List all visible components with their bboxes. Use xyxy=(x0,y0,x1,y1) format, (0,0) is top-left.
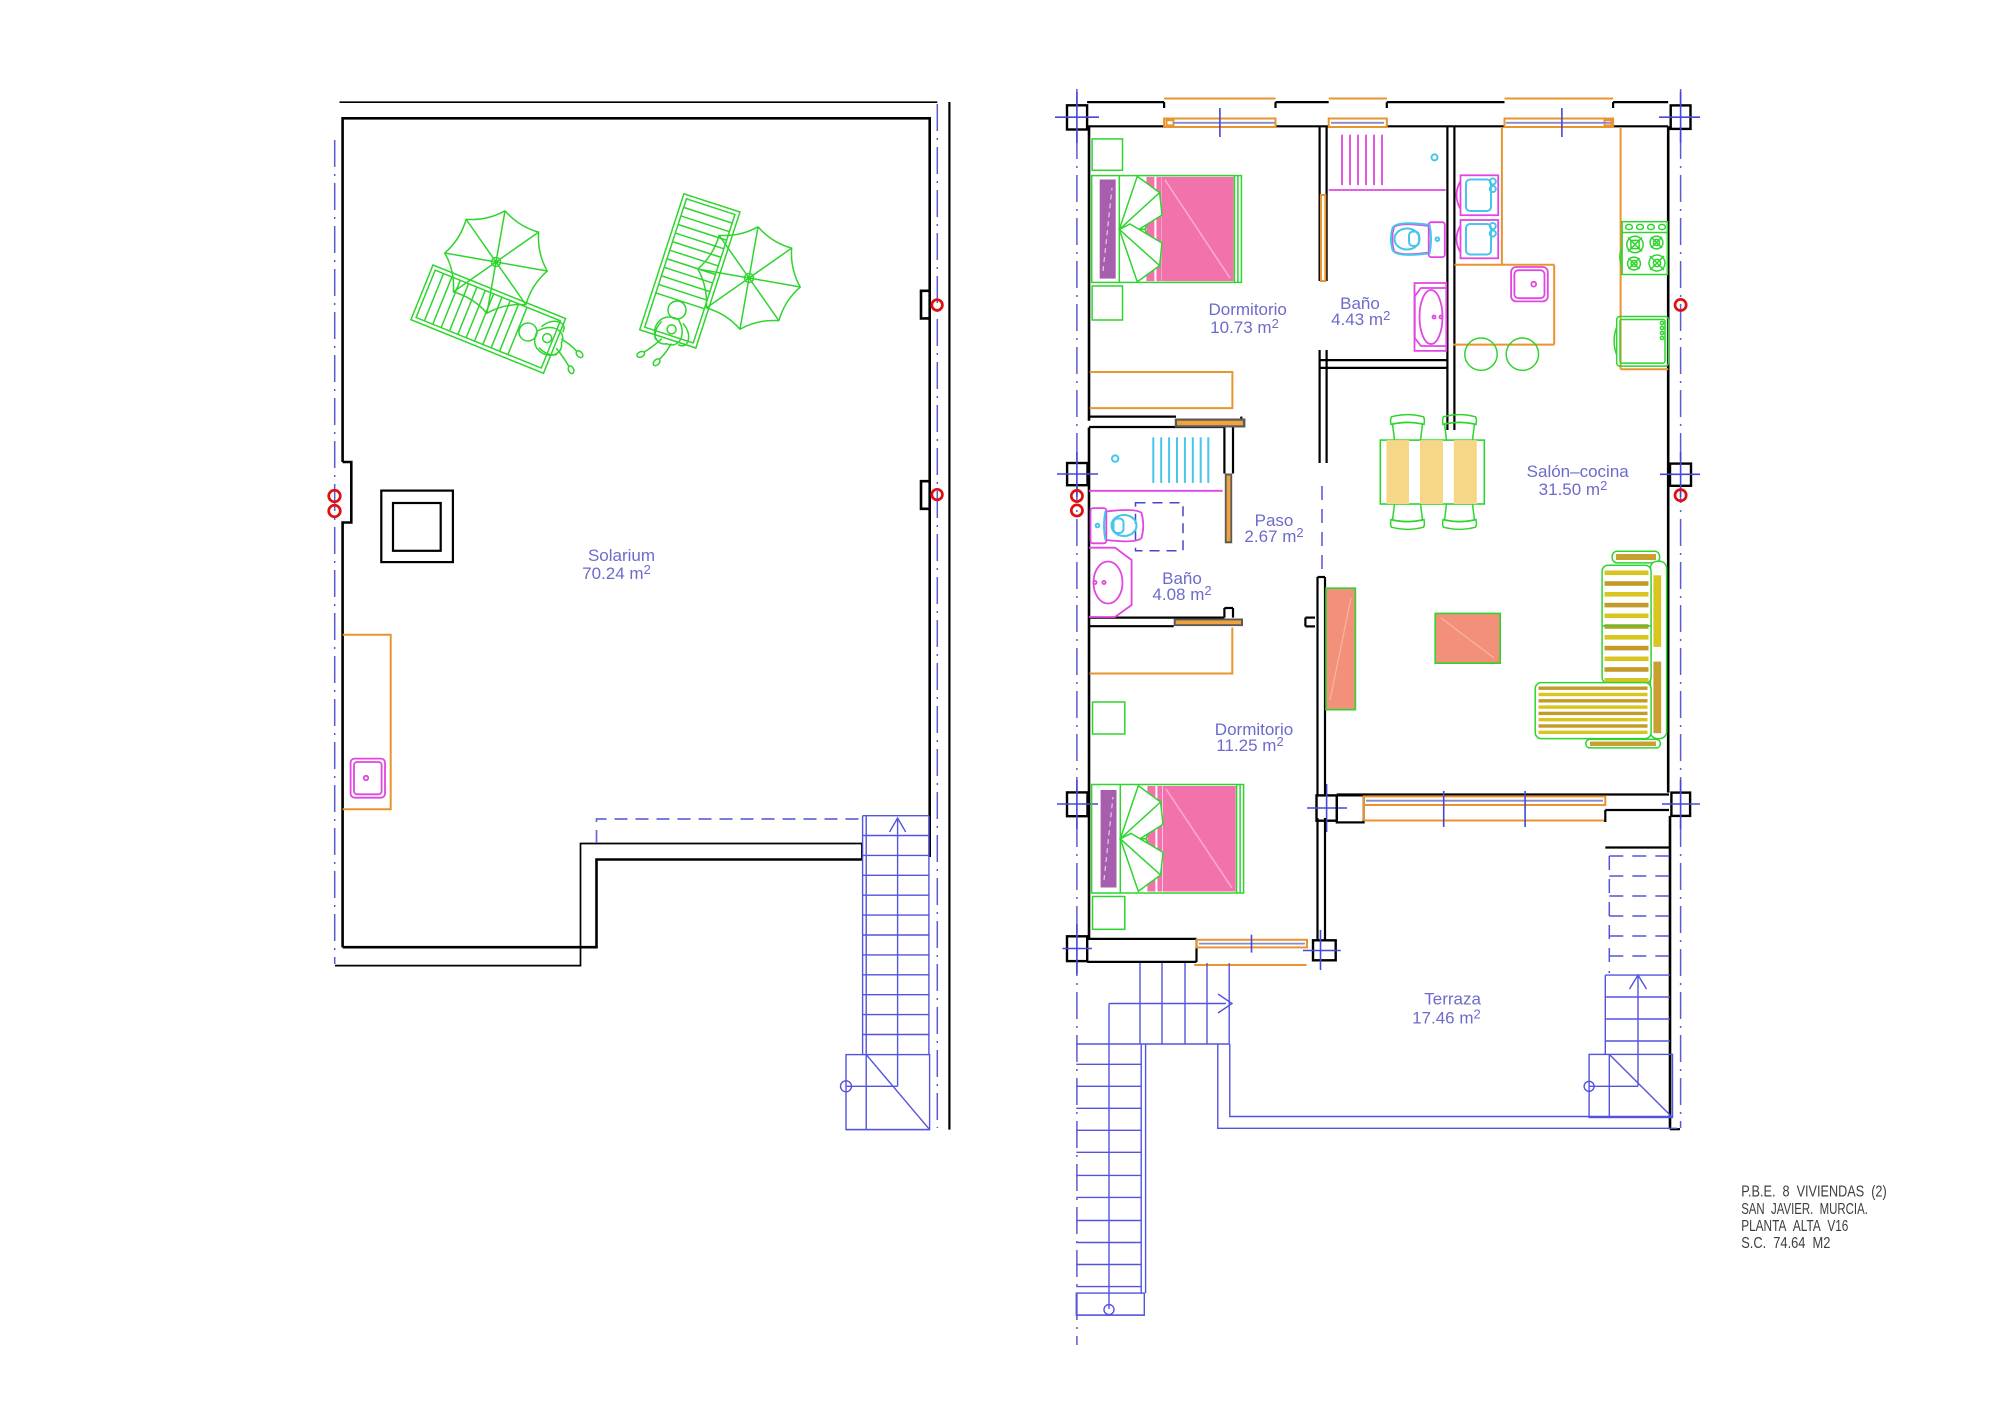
svg-text:PLANTA ALTA V16: PLANTA ALTA V16 xyxy=(1741,1218,1848,1235)
svg-text:Salón–cocina: Salón–cocina xyxy=(1527,462,1630,481)
svg-text:70.24 m2: 70.24 m2 xyxy=(582,562,651,583)
svg-text:2.67 m2: 2.67 m2 xyxy=(1244,525,1303,546)
svg-text:11.25 m2: 11.25 m2 xyxy=(1216,734,1283,755)
svg-text:4.43 m2: 4.43 m2 xyxy=(1331,308,1390,329)
svg-text:P.B.E. 8 VIVIENDAS (2): P.B.E. 8 VIVIENDAS (2) xyxy=(1741,1184,1887,1201)
svg-text:31.50 m2: 31.50 m2 xyxy=(1539,478,1608,499)
svg-text:4.08 m2: 4.08 m2 xyxy=(1152,583,1211,604)
svg-text:17.46 m2: 17.46 m2 xyxy=(1412,1007,1481,1028)
svg-text:SAN JAVIER. MURCIA.: SAN JAVIER. MURCIA. xyxy=(1741,1201,1868,1218)
svg-text:S.C. 74.64 M2: S.C. 74.64 M2 xyxy=(1741,1235,1830,1252)
svg-text:10.73 m2: 10.73 m2 xyxy=(1210,316,1279,337)
